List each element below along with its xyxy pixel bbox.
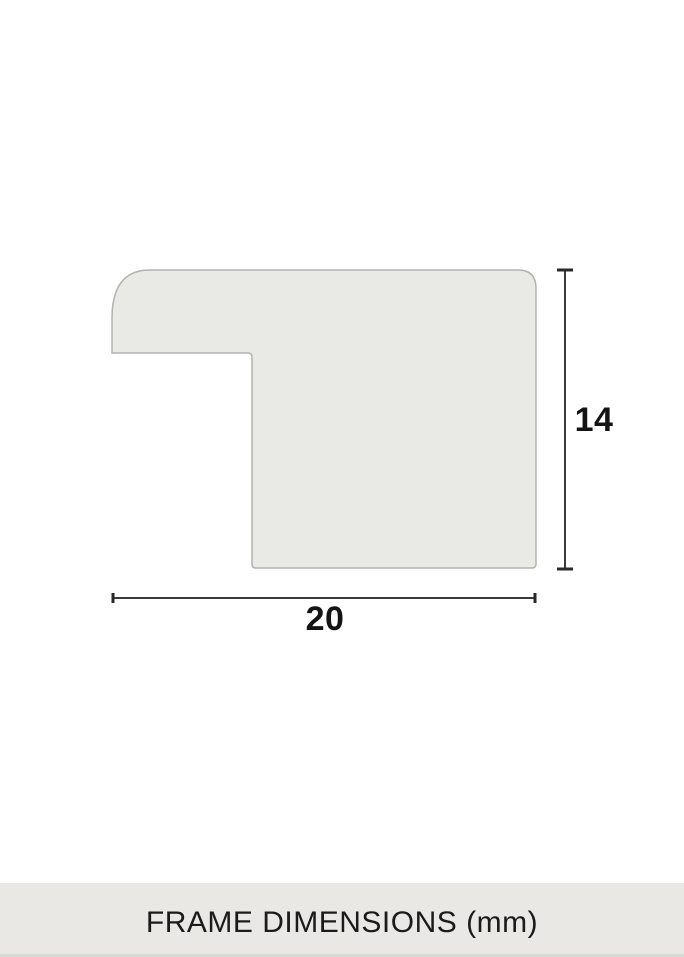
caption-bar: FRAME DIMENSIONS (mm) bbox=[0, 883, 684, 957]
frame-profile-shape bbox=[112, 270, 536, 568]
height-dimension-value: 14 bbox=[564, 403, 624, 437]
width-dimension-value: 20 bbox=[285, 602, 365, 636]
profile-drawing bbox=[0, 0, 684, 700]
frame-dimensions-diagram: 14 20 FRAME DIMENSIONS (mm) bbox=[0, 0, 684, 957]
caption-text: FRAME DIMENSIONS (mm) bbox=[0, 907, 684, 939]
